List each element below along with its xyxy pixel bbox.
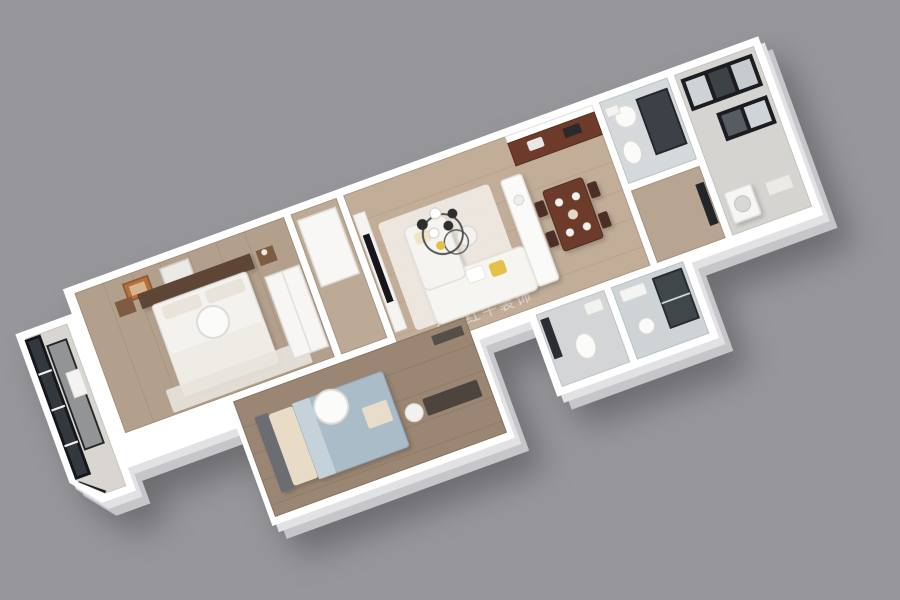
floorplan-render: 红牛装饰 xyxy=(0,0,900,600)
